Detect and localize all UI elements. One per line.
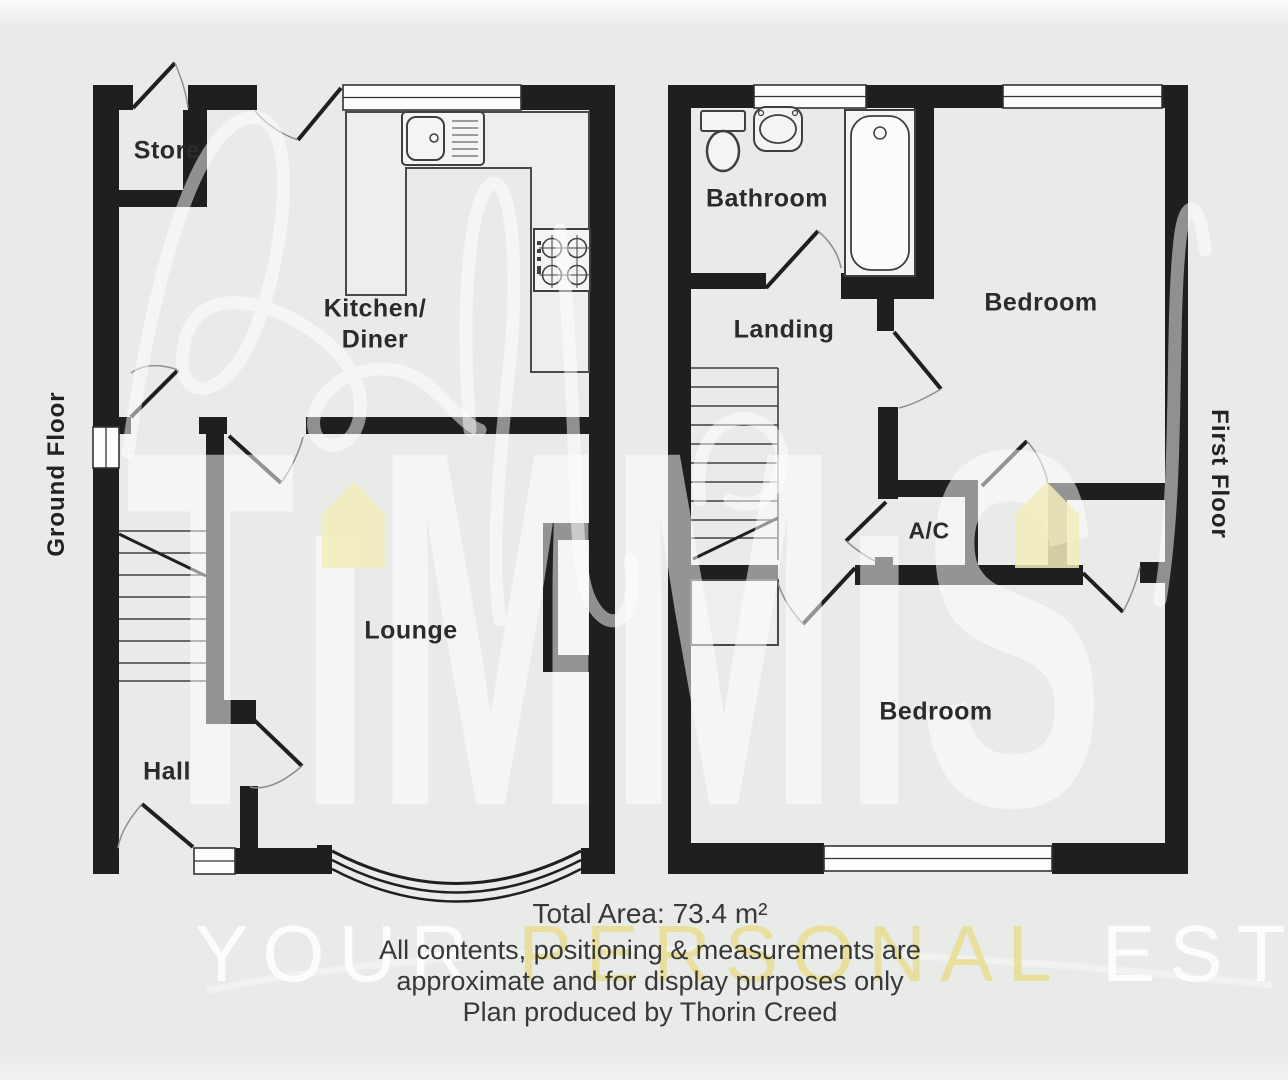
- staircase-ground: [119, 531, 206, 681]
- wall-segment: [1052, 843, 1165, 874]
- wall-segment: [206, 700, 256, 724]
- room-label-hall: Hall: [143, 758, 191, 787]
- wall-segment: [235, 848, 331, 874]
- bathroom-door: [766, 231, 841, 288]
- first-floor-label: First Floor: [1205, 409, 1233, 539]
- room-label-kitchen-line2: Diner: [342, 326, 408, 355]
- room-label-store: Store: [134, 137, 200, 166]
- wall-segment: [965, 488, 978, 567]
- hob-fixture: [534, 229, 590, 291]
- total-area-text: Total Area: 73.4 m²: [240, 898, 1060, 930]
- kitchen-sink-fixture: [402, 112, 484, 165]
- wall-segment: [306, 417, 589, 434]
- wall-segment: [691, 565, 778, 581]
- staircase-first: [691, 368, 778, 560]
- disclaimer-line: All contents, positioning & measurements…: [240, 935, 1060, 966]
- bath-fixture: [845, 110, 915, 276]
- wardrobe-door: [982, 441, 1048, 486]
- bedroom-bottom-window: [824, 846, 1052, 871]
- wall-segment: [877, 299, 894, 331]
- wall-segment: [668, 85, 754, 108]
- understairs-door: [131, 366, 178, 417]
- wall-segment: [1048, 487, 1067, 567]
- wall-segment: [1165, 85, 1188, 874]
- footer-text-block: Total Area: 73.4 m² All contents, positi…: [240, 898, 1060, 1028]
- room-label-bedroom-top: Bedroom: [984, 289, 1097, 318]
- wall-segment: [581, 848, 615, 874]
- wall-segment: [691, 273, 766, 289]
- wall-segment: [914, 108, 934, 287]
- disclaimer-line: approximate and for display purposes onl…: [240, 966, 1060, 997]
- kitchen-lounge-door: [229, 436, 303, 483]
- wall-segment: [691, 843, 824, 874]
- wall-segment: [93, 85, 119, 427]
- wall-segment: [93, 468, 119, 874]
- room-label-kitchen-line1: Kitchen/: [324, 295, 427, 324]
- front-side-window: [194, 848, 235, 874]
- wall-segment: [855, 565, 1083, 585]
- stair-bulkhead: [691, 580, 778, 645]
- ground-floor-label: Ground Floor: [43, 391, 71, 556]
- room-label-bathroom: Bathroom: [706, 185, 828, 214]
- kitchen-back-door: [255, 88, 341, 140]
- bedroom-cupboard-door: [1083, 567, 1140, 612]
- bedroom-bottom-door: [778, 568, 855, 624]
- room-label-airing-cupboard: A/C: [908, 518, 949, 545]
- bay-window: [332, 851, 581, 902]
- wall-segment: [866, 85, 1003, 108]
- background-gradient-bottom: [0, 1052, 1288, 1080]
- airing-cupboard-door: [846, 502, 886, 561]
- wall-segment: [206, 434, 224, 704]
- kitchen-window: [343, 85, 521, 110]
- toilet-fixture: [701, 111, 745, 171]
- fireplace-wall: [543, 655, 589, 672]
- wall-segment: [240, 786, 258, 848]
- hall-side-window: [93, 427, 119, 468]
- bathroom-window: [754, 85, 866, 108]
- wall-segment: [1140, 562, 1165, 583]
- produced-by-text: Plan produced by Thorin Creed: [240, 997, 1060, 1028]
- wall-segment: [119, 417, 131, 434]
- room-label-landing: Landing: [734, 316, 835, 345]
- room-label-bedroom-bottom: Bedroom: [879, 698, 992, 727]
- wall-segment: [875, 557, 893, 566]
- front-door: [118, 804, 193, 848]
- store-door: [133, 63, 188, 108]
- wall-segment: [93, 85, 133, 110]
- hall-lounge-door: [250, 716, 302, 788]
- wall-segment: [589, 85, 615, 851]
- basin-fixture: [754, 107, 802, 151]
- fireplace-wall: [543, 523, 589, 540]
- bedroom-top-door: [894, 332, 941, 408]
- wall-segment: [878, 480, 978, 497]
- wall-segment: [317, 845, 332, 874]
- room-label-lounge: Lounge: [364, 617, 457, 646]
- wall-segment: [668, 85, 691, 874]
- bedroom-top-window: [1003, 85, 1162, 108]
- fireplace-wall: [543, 523, 558, 672]
- wall-segment: [188, 85, 257, 110]
- wall-segment: [93, 190, 207, 207]
- floorplan-page: TıMMıS YOURPERSONALESTA Store Kitchen/ D…: [0, 0, 1288, 1080]
- wall-segment: [199, 417, 227, 434]
